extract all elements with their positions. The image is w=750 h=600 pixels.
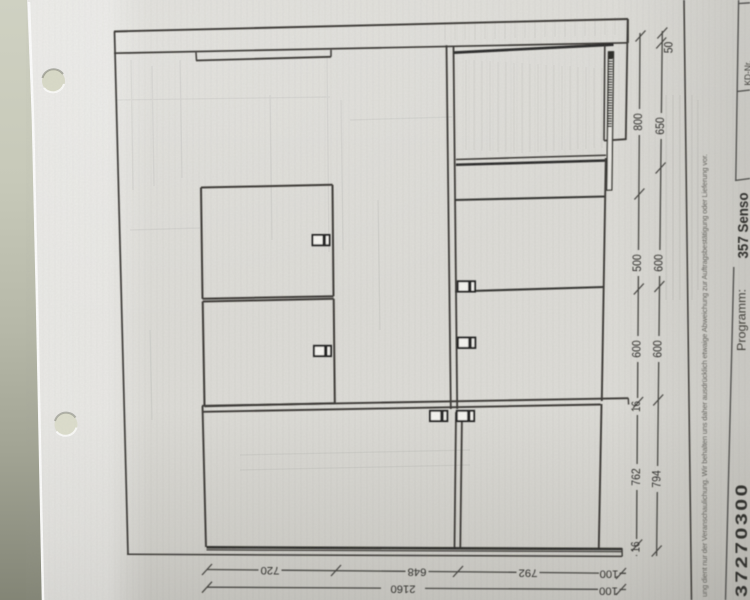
svg-text:100: 100	[599, 584, 618, 596]
svg-text:650: 650	[653, 117, 667, 135]
svg-text:16: 16	[628, 541, 642, 552]
svg-text:600: 600	[650, 340, 664, 358]
svg-text:600: 600	[629, 340, 643, 358]
svg-text:16: 16	[629, 401, 643, 412]
svg-text:Programm:: Programm:	[735, 289, 749, 351]
svg-text:500: 500	[630, 254, 644, 272]
svg-text:600: 600	[651, 254, 665, 272]
svg-text:37270300: 37270300	[732, 482, 750, 597]
svg-text:648: 648	[408, 566, 427, 578]
svg-text:100: 100	[600, 568, 619, 580]
svg-text:KD-Nr.: KD-Nr.	[743, 61, 750, 86]
svg-text:800: 800	[631, 113, 645, 131]
svg-text:762: 762	[629, 468, 643, 486]
svg-text:357 Senso: 357 Senso	[735, 193, 750, 259]
svg-text:792: 792	[519, 567, 538, 579]
svg-text:794: 794	[649, 470, 663, 488]
svg-text:2160: 2160	[391, 582, 416, 594]
svg-text:720: 720	[261, 564, 280, 576]
svg-text:ung dient nur der Veranschauli: ung dient nur der Veranschaulichung. Wir…	[700, 154, 709, 597]
svg-text:50: 50	[662, 41, 676, 53]
